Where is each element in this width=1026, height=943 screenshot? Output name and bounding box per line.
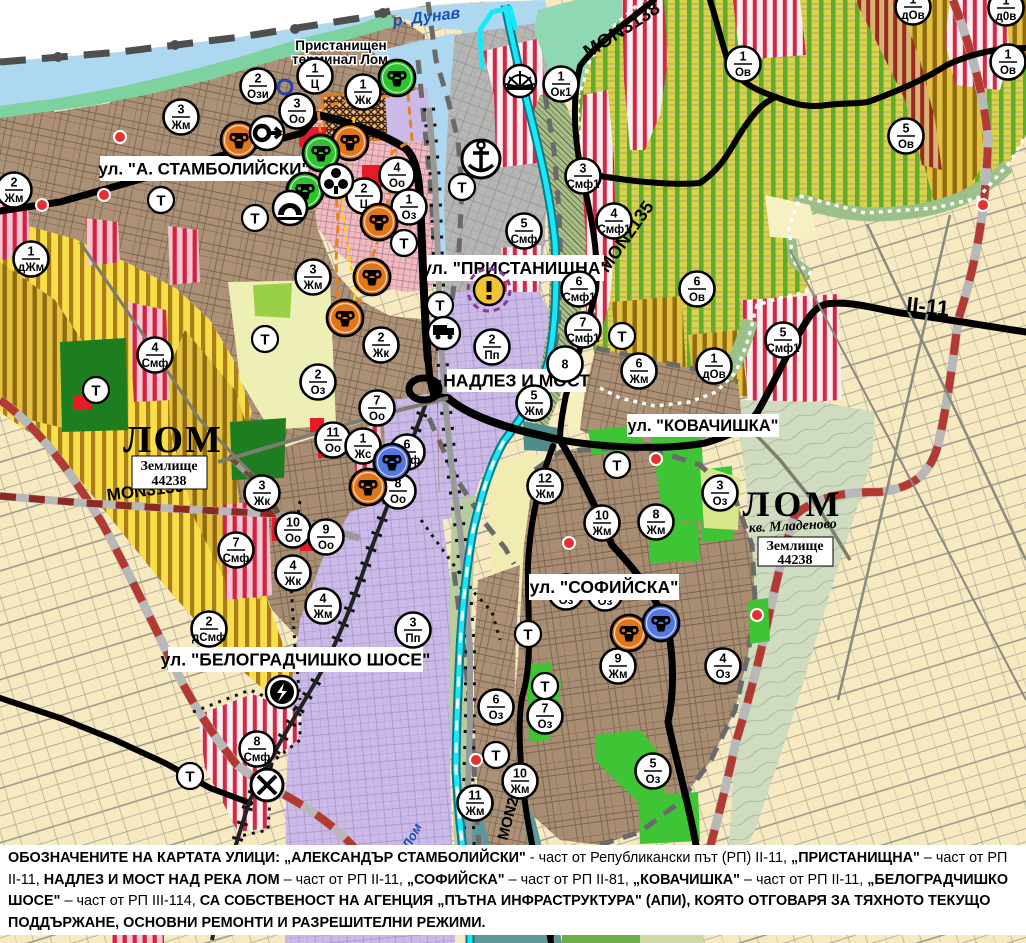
svg-text:6: 6 xyxy=(576,275,583,289)
svg-text:Смф1: Смф1 xyxy=(566,179,600,191)
svg-text:Оо: Оо xyxy=(318,540,334,552)
svg-text:9: 9 xyxy=(323,523,330,537)
svg-text:дОв: дОв xyxy=(901,10,924,22)
svg-text:4: 4 xyxy=(320,592,327,606)
svg-text:Смф: Смф xyxy=(511,234,538,246)
svg-text:Жк: Жк xyxy=(284,576,301,588)
svg-text:Смф: Смф xyxy=(244,752,271,764)
svg-text:Жс: Жс xyxy=(354,449,372,461)
svg-text:Смф1: Смф1 xyxy=(562,292,596,304)
svg-text:Ц: Ц xyxy=(311,79,320,91)
svg-text:Т: Т xyxy=(491,748,500,765)
svg-text:7: 7 xyxy=(233,536,240,550)
svg-text:12: 12 xyxy=(538,472,552,486)
svg-text:2: 2 xyxy=(489,333,496,347)
svg-text:5: 5 xyxy=(903,122,910,136)
svg-text:7: 7 xyxy=(542,702,549,716)
svg-text:ул. "СОФИЙСКА": ул. "СОФИЙСКА" xyxy=(530,576,679,597)
svg-text:4: 4 xyxy=(394,161,401,175)
svg-text:Жм: Жм xyxy=(646,525,666,537)
svg-text:4: 4 xyxy=(720,652,727,666)
svg-text:7: 7 xyxy=(580,316,587,330)
svg-text:Смф1: Смф1 xyxy=(597,224,631,236)
svg-text:ЛОМ: ЛОМ xyxy=(123,419,223,461)
svg-text:9: 9 xyxy=(615,652,622,666)
svg-text:3: 3 xyxy=(580,162,587,176)
svg-text:Т: Т xyxy=(540,679,549,696)
svg-text:4: 4 xyxy=(611,207,618,221)
svg-text:6: 6 xyxy=(636,357,643,371)
svg-text:Пп: Пп xyxy=(484,350,499,362)
svg-text:11: 11 xyxy=(468,789,481,803)
svg-text:1: 1 xyxy=(740,50,747,64)
svg-text:2: 2 xyxy=(361,182,368,196)
svg-text:3: 3 xyxy=(178,103,185,117)
svg-text:Оз: Оз xyxy=(713,496,728,508)
svg-text:Ов: Ов xyxy=(898,139,914,151)
svg-text:6: 6 xyxy=(493,693,500,707)
svg-text:Оз: Оз xyxy=(489,710,504,722)
svg-text:дСмф: дСмф xyxy=(192,632,226,644)
svg-text:Землище: Землище xyxy=(140,459,197,474)
svg-text:5: 5 xyxy=(521,217,528,231)
svg-text:Жм: Жм xyxy=(524,406,544,418)
svg-text:10: 10 xyxy=(286,516,300,530)
svg-text:Оо: Оо xyxy=(289,114,305,126)
svg-text:Т: Т xyxy=(260,332,269,349)
svg-text:3: 3 xyxy=(310,263,317,277)
svg-text:1: 1 xyxy=(910,0,917,7)
svg-text:3: 3 xyxy=(259,479,266,493)
svg-text:Т: Т xyxy=(617,329,626,346)
svg-text:Ози: Ози xyxy=(247,89,269,101)
svg-text:1: 1 xyxy=(558,70,565,84)
svg-text:Т: Т xyxy=(156,193,165,210)
svg-text:Ов: Ов xyxy=(689,292,705,304)
svg-text:Смф1: Смф1 xyxy=(566,333,600,345)
svg-text:Т: Т xyxy=(250,211,259,228)
svg-text:Жм: Жм xyxy=(535,489,555,501)
svg-text:3: 3 xyxy=(294,97,301,111)
svg-text:Оз: Оз xyxy=(311,385,326,397)
svg-text:8: 8 xyxy=(562,358,569,372)
svg-text:2: 2 xyxy=(11,176,18,190)
svg-text:Оз: Оз xyxy=(402,210,417,222)
svg-text:4: 4 xyxy=(290,559,297,573)
svg-text:Оз: Оз xyxy=(716,669,731,681)
svg-text:ул. "А. СТАМБОЛИЙСКИ": ул. "А. СТАМБОЛИЙСКИ" xyxy=(98,159,309,178)
svg-text:1: 1 xyxy=(360,432,367,446)
svg-text:5: 5 xyxy=(780,326,787,340)
svg-text:5: 5 xyxy=(531,389,538,403)
svg-text:Смф: Смф xyxy=(142,358,169,370)
svg-text:1: 1 xyxy=(711,352,718,366)
svg-text:Жм: Жм xyxy=(592,526,612,538)
svg-text:Жм: Жм xyxy=(303,280,323,292)
svg-text:Оо: Оо xyxy=(285,533,301,545)
svg-text:Жм: Жм xyxy=(465,806,485,818)
svg-text:Смф: Смф xyxy=(223,553,250,565)
svg-text:дОв: дОв xyxy=(702,369,725,381)
svg-text:Жм: Жм xyxy=(629,374,649,386)
svg-text:Жм: Жм xyxy=(510,784,530,796)
svg-text:1: 1 xyxy=(1005,48,1012,62)
svg-text:Ов: Ов xyxy=(1000,65,1016,77)
svg-text:Смф1: Смф1 xyxy=(766,343,800,355)
svg-text:Т: Т xyxy=(435,298,444,315)
svg-text:1: 1 xyxy=(406,193,413,207)
svg-text:1: 1 xyxy=(312,62,319,76)
svg-text:Т: Т xyxy=(185,769,194,786)
svg-text:Землище: Землище xyxy=(766,539,823,554)
svg-text:Т: Т xyxy=(523,627,532,644)
svg-text:3: 3 xyxy=(717,479,724,493)
svg-text:4: 4 xyxy=(152,341,159,355)
svg-text:11: 11 xyxy=(326,426,339,440)
svg-text:8: 8 xyxy=(653,508,660,522)
svg-text:Оо: Оо xyxy=(369,411,385,423)
svg-text:6: 6 xyxy=(694,275,701,289)
svg-text:10: 10 xyxy=(513,767,527,781)
svg-text:Ок1: Ок1 xyxy=(550,87,572,99)
svg-text:Жм: Жм xyxy=(4,193,24,205)
svg-text:1: 1 xyxy=(360,78,367,92)
svg-text:2: 2 xyxy=(315,368,322,382)
svg-text:Оо: Оо xyxy=(325,443,341,455)
svg-text:Жк: Жк xyxy=(354,95,371,107)
svg-text:Жк: Жк xyxy=(253,496,270,508)
svg-text:Ов: Ов xyxy=(735,67,751,79)
svg-text:Жм: Жм xyxy=(313,609,333,621)
svg-text:Оо: Оо xyxy=(389,178,405,190)
svg-text:3: 3 xyxy=(410,616,417,630)
svg-text:5: 5 xyxy=(650,757,657,771)
svg-text:дЖм: дЖм xyxy=(18,262,44,274)
svg-text:Оз: Оз xyxy=(646,774,661,786)
svg-text:Т: Т xyxy=(612,458,621,475)
svg-text:Т: Т xyxy=(457,180,466,197)
svg-text:8: 8 xyxy=(254,735,261,749)
svg-text:ул. "БЕЛОГРАДЧИШКО ШОСЕ": ул. "БЕЛОГРАДЧИШКО ШОСЕ" xyxy=(161,649,431,669)
svg-text:Оо: Оо xyxy=(390,494,406,506)
svg-text:2: 2 xyxy=(378,331,385,345)
svg-text:Жм: Жм xyxy=(171,120,191,132)
svg-text:44238: 44238 xyxy=(778,553,813,568)
svg-text:д0в: д0в xyxy=(996,11,1017,23)
svg-text:Оз: Оз xyxy=(538,719,553,731)
svg-text:Жк: Жк xyxy=(372,348,389,360)
svg-text:1: 1 xyxy=(1003,0,1010,8)
svg-text:2: 2 xyxy=(206,615,213,629)
svg-text:1: 1 xyxy=(28,245,35,259)
svg-text:Пп: Пп xyxy=(405,633,420,645)
svg-text:2: 2 xyxy=(255,72,262,86)
svg-text:44238: 44238 xyxy=(152,474,187,489)
svg-text:ул. "КОВАЧИШКА": ул. "КОВАЧИШКА" xyxy=(628,417,779,435)
svg-text:Жм: Жм xyxy=(608,669,628,681)
svg-text:7: 7 xyxy=(374,394,381,408)
svg-text:Т: Т xyxy=(91,383,100,400)
svg-text:II-11: II-11 xyxy=(905,292,950,321)
svg-text:Т: Т xyxy=(399,236,408,253)
svg-text:10: 10 xyxy=(595,509,609,523)
svg-text:Пристанищен: Пристанищен xyxy=(295,38,386,53)
